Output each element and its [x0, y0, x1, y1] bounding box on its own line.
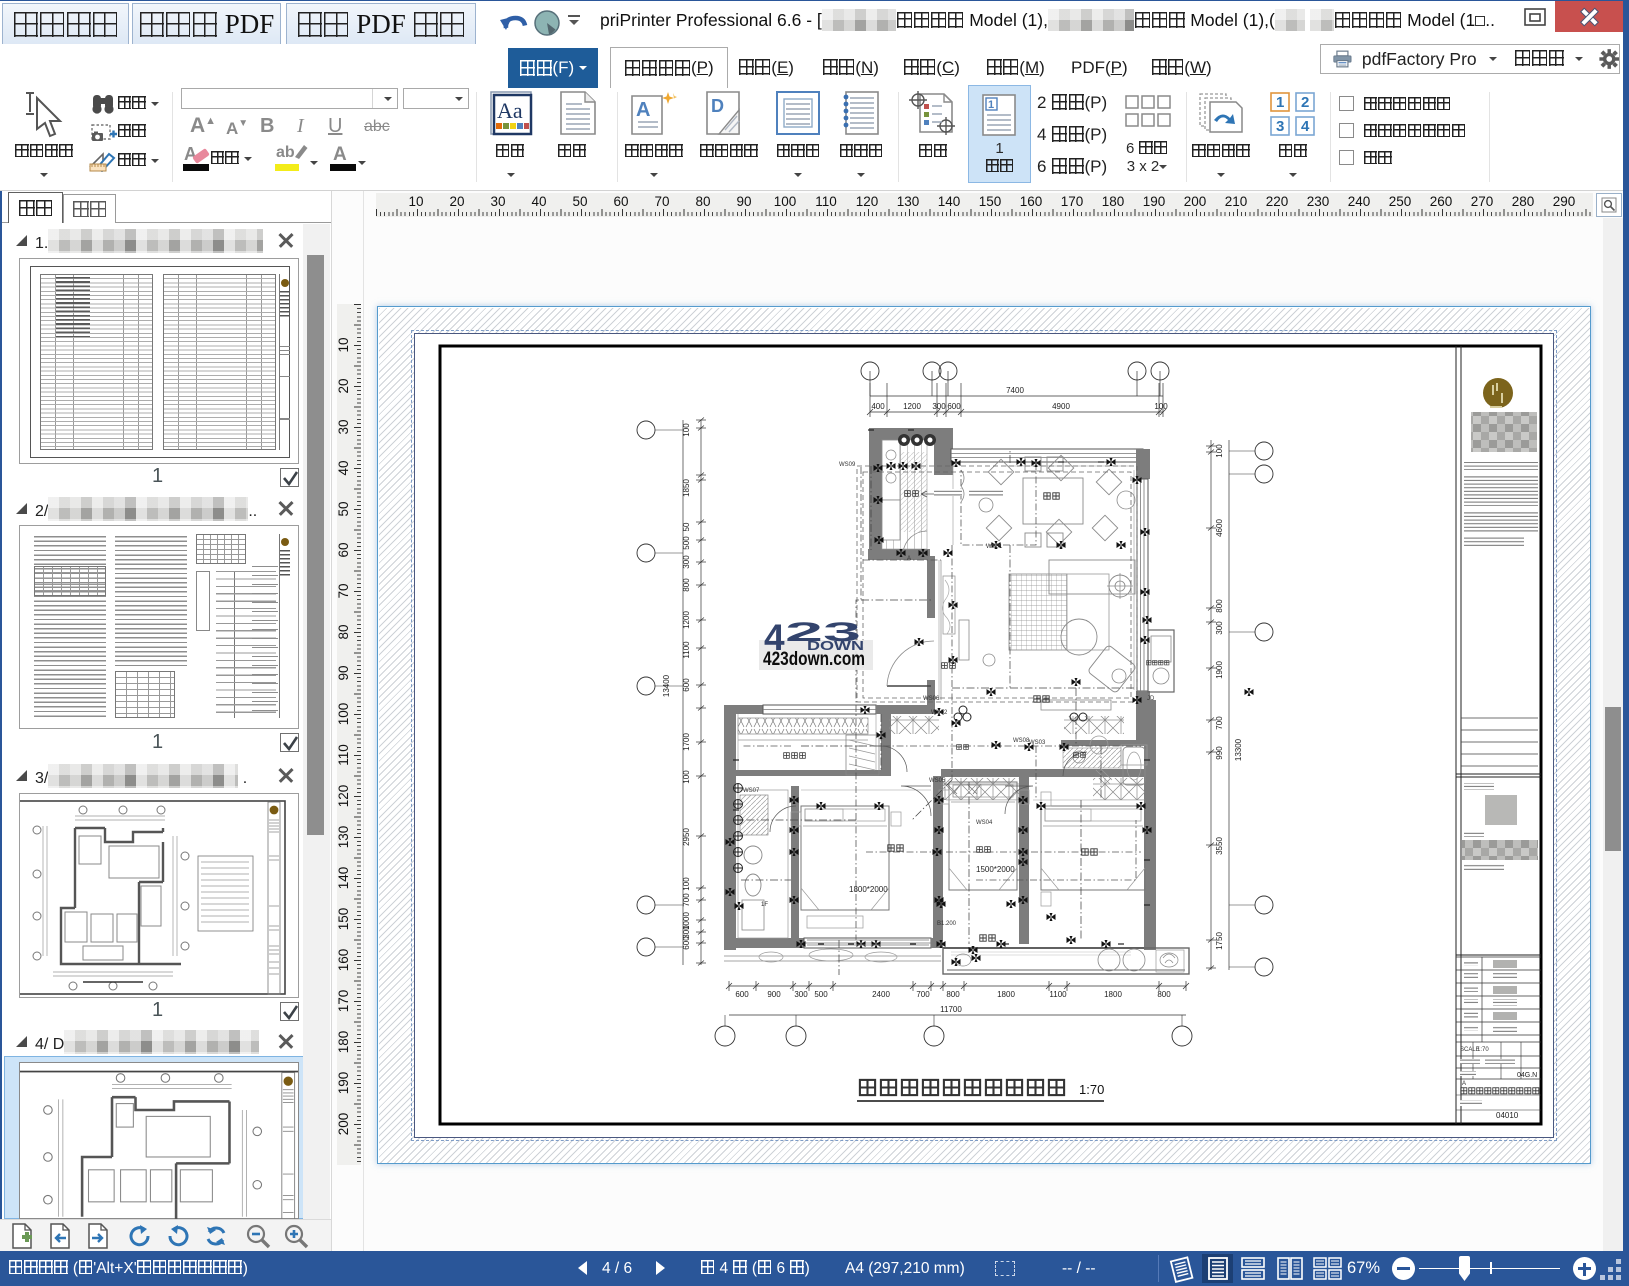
svg-text:4: 4 [1301, 118, 1310, 135]
svg-text:400: 400 [871, 402, 885, 411]
svg-text:800: 800 [682, 578, 691, 592]
svg-text:600: 600 [735, 990, 749, 999]
svg-text:A: A [636, 99, 650, 121]
svg-text:300: 300 [932, 402, 946, 411]
svg-text:WS02: WS02 [931, 710, 948, 716]
svg-text:700: 700 [1215, 716, 1224, 730]
svg-text:50: 50 [682, 522, 691, 531]
svg-text:300: 300 [682, 555, 691, 569]
svg-text:900: 900 [767, 990, 781, 999]
svg-text:100: 100 [682, 423, 691, 437]
svg-text:100: 100 [682, 877, 691, 891]
svg-text:1F: 1F [761, 902, 768, 908]
svg-text:WS06: WS06 [923, 696, 940, 702]
svg-text:1800: 1800 [1104, 990, 1122, 999]
svg-text:1:70: 1:70 [1079, 1082, 1104, 1097]
svg-text:3550: 3550 [1215, 837, 1224, 855]
svg-text:300: 300 [794, 990, 808, 999]
svg-text:1200: 1200 [903, 402, 921, 411]
svg-text:500: 500 [682, 536, 691, 550]
svg-text:1: 1 [1276, 94, 1284, 111]
svg-text:WS08: WS08 [1013, 738, 1030, 744]
svg-text:4600: 4600 [1215, 519, 1224, 537]
svg-text:WS01: WS01 [986, 544, 1003, 550]
svg-text:13300: 13300 [1234, 738, 1243, 761]
svg-text:1900: 1900 [1215, 661, 1224, 679]
svg-text:3: 3 [1276, 118, 1284, 135]
svg-text:WS03: WS03 [1029, 740, 1046, 746]
svg-text:04010: 04010 [1496, 1111, 1519, 1120]
svg-text:800: 800 [1157, 990, 1171, 999]
svg-text:800: 800 [1215, 599, 1224, 613]
svg-text:1850: 1850 [682, 479, 691, 497]
svg-text:2400: 2400 [872, 990, 890, 999]
svg-text:600: 600 [682, 936, 691, 950]
svg-text:100: 100 [682, 770, 691, 784]
svg-text:04G.N: 04G.N [1517, 1072, 1537, 1079]
svg-text:WS05: WS05 [929, 778, 946, 784]
svg-text:1750: 1750 [1215, 932, 1224, 950]
svg-text:1500*2000: 1500*2000 [976, 865, 1015, 874]
svg-text:800: 800 [946, 990, 960, 999]
svg-text:100: 100 [1215, 444, 1224, 458]
svg-text:Aa: Aa [497, 98, 523, 123]
svg-text:4900: 4900 [1052, 402, 1070, 411]
svg-text:423down.com: 423down.com [763, 648, 865, 670]
svg-text:JD: JD [1147, 696, 1155, 702]
svg-text:1800: 1800 [997, 990, 1015, 999]
svg-text:1700: 1700 [682, 733, 691, 751]
svg-text:1200: 1200 [682, 611, 691, 629]
svg-text:A: A [907, 556, 911, 562]
svg-text:1: 1 [988, 99, 994, 111]
svg-text:11700: 11700 [940, 1005, 962, 1014]
svg-text:7400: 7400 [1006, 386, 1024, 395]
svg-text:1100: 1100 [1049, 990, 1067, 999]
svg-text:100: 100 [1154, 402, 1168, 411]
svg-text:300: 300 [1215, 621, 1224, 635]
svg-text:B1.200: B1.200 [937, 921, 957, 927]
svg-text:500: 500 [814, 990, 828, 999]
svg-text:1:70: 1:70 [1477, 1047, 1489, 1053]
svg-text:WS09: WS09 [839, 462, 856, 468]
svg-text:600: 600 [947, 402, 961, 411]
svg-text:990: 990 [1215, 746, 1224, 760]
svg-text:13400: 13400 [662, 674, 671, 697]
svg-text:1800*2000: 1800*2000 [849, 885, 888, 894]
svg-text:WS07: WS07 [743, 788, 760, 794]
svg-text:700: 700 [916, 990, 930, 999]
svg-text:A: A [1462, 1081, 1466, 1087]
svg-text:2950: 2950 [682, 828, 691, 846]
svg-text:2: 2 [1301, 94, 1309, 111]
svg-text:1100: 1100 [682, 641, 691, 659]
svg-text:600: 600 [682, 678, 691, 692]
svg-text:700: 700 [682, 893, 691, 907]
svg-text:D: D [711, 96, 724, 116]
svg-text:WS04: WS04 [976, 820, 993, 826]
